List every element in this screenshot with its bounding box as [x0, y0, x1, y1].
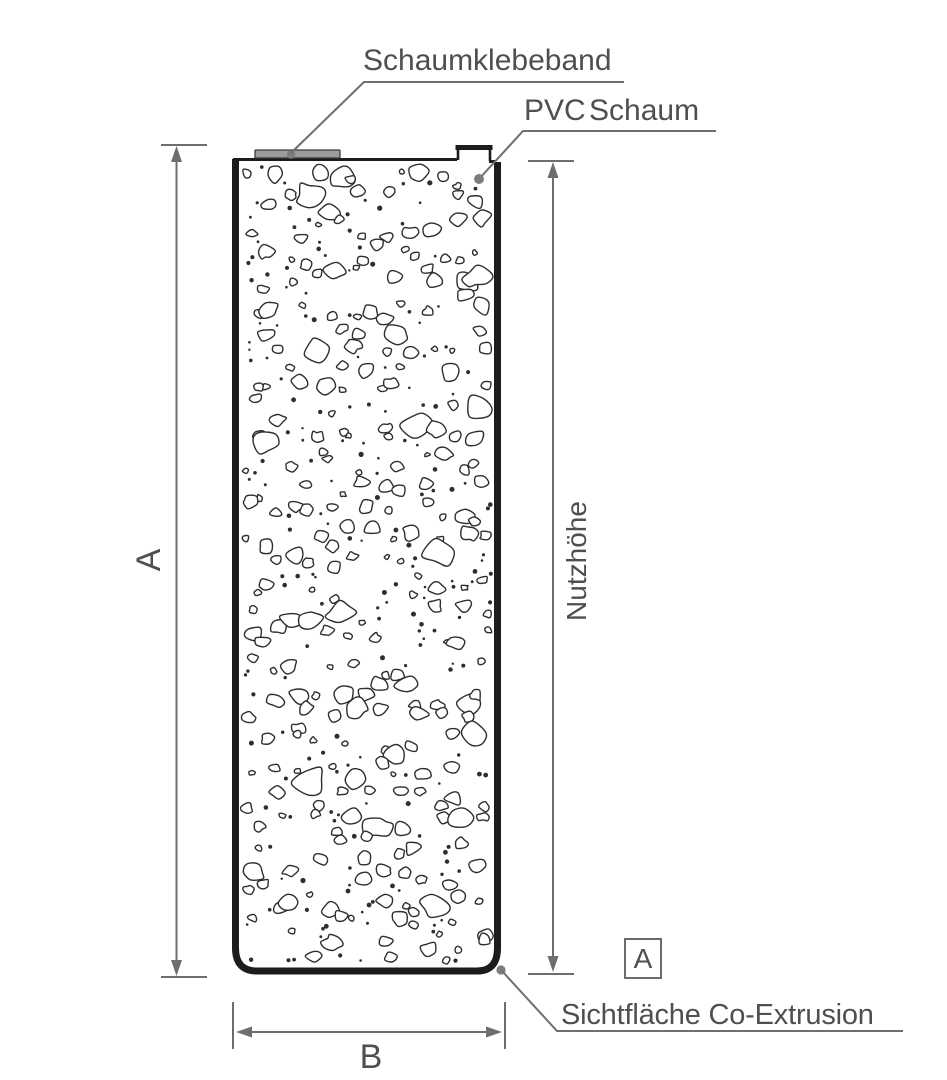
dimension-b-label: B: [360, 1040, 383, 1074]
diagram-geometry: [0, 0, 947, 1080]
tape-leader-dot: [287, 150, 295, 158]
schaumklebeband-label: Schaumklebeband: [363, 46, 612, 76]
foam-texture: [240, 164, 493, 964]
pvc-foam-leader-dot: [474, 174, 484, 184]
pvc-foam-tab: [456, 148, 493, 162]
pvc-foam-leader: [474, 131, 716, 184]
section-marker-box: A: [624, 938, 662, 979]
sichtflaeche-label: Sichtfläche Co-Extrusion: [561, 1001, 874, 1030]
section-marker-label: A: [634, 943, 653, 975]
pvc-schaum-label: PVC Schaum: [524, 96, 699, 126]
nutzhoehe-label: Nutzhöhe: [563, 501, 591, 621]
profile-diagram: Schaumklebeband PVC Schaum A Nutzhöhe B …: [0, 0, 947, 1080]
dimension-a-label: A: [132, 549, 166, 572]
foam-adhesive-tape: [255, 150, 340, 159]
